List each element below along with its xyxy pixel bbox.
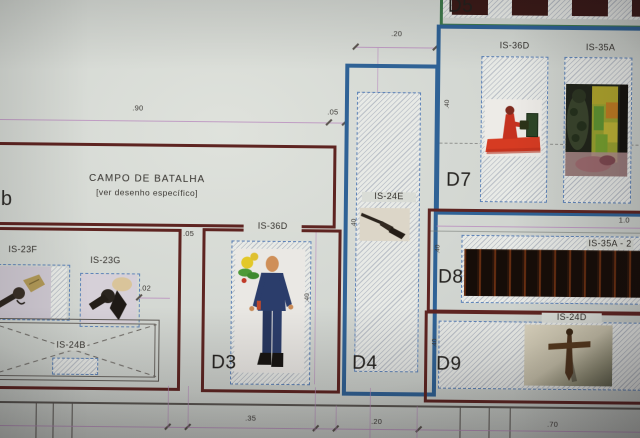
case-label-d3: D3	[211, 353, 236, 372]
hatch-fill	[51, 267, 68, 319]
dimension-line	[138, 297, 170, 298]
display-box-d7: IS-36D IS-35A D7 .40	[435, 25, 640, 217]
dimension-extension-line	[168, 386, 169, 428]
red-figure-photo	[484, 99, 542, 157]
wall-line	[459, 407, 461, 438]
mannequin-photo	[234, 248, 305, 373]
dimension-label: .70	[528, 421, 578, 429]
vertical-dim-label: .40	[351, 219, 358, 228]
exhibit-slot	[0, 264, 70, 321]
hatch-strip	[52, 358, 98, 375]
item-label-is23g: IS-23G	[90, 256, 120, 266]
crate-outline: IS-24B	[0, 318, 160, 382]
item-label-is36d-d7: IS-36D	[484, 41, 544, 52]
photographed-floorplan: .90 .05 .20 b CAMPO DE BATALHA [ver dese…	[0, 0, 640, 438]
dimension-label: .05	[319, 108, 347, 116]
rifle-graphic	[359, 208, 409, 242]
item-label-is35a2: IS-35A - 2	[586, 239, 633, 249]
wall-line	[52, 403, 54, 438]
guide-line	[431, 231, 640, 234]
soldiers-graphic	[565, 84, 628, 177]
mannequin-graphic	[234, 248, 305, 373]
case-label-d4: D4	[352, 354, 377, 373]
dimension-extension-line	[369, 388, 371, 438]
vertical-dim-label: .40	[444, 100, 451, 109]
dimension-line	[0, 119, 347, 124]
vertical-dim-label: .40	[304, 293, 311, 302]
display-box-d9: IS-24D	[424, 310, 640, 404]
display-box-guns: IS-23F IS-23G	[0, 227, 182, 391]
item-label-is23f: IS-23F	[8, 245, 37, 255]
case-label-d9: D9	[436, 355, 461, 374]
display-box-d8: 1.0 IS-35A - 2 D8 .40	[427, 208, 640, 314]
wall-line	[35, 402, 37, 438]
red-figure-graphic	[484, 99, 542, 157]
item-label-is35a-d7: IS-35A	[570, 43, 630, 54]
artifact-block	[632, 0, 640, 17]
case-label-d5: D5	[448, 0, 473, 16]
case-label-d7: D7	[446, 171, 471, 190]
soldiers-photo	[565, 84, 628, 177]
item-label-is36d: IS-36D	[244, 222, 302, 232]
dimension-extension-line	[416, 406, 417, 438]
dimension-line	[437, 226, 640, 229]
artifact-block	[572, 0, 608, 16]
dimension-label: .35	[226, 414, 276, 422]
artifact-strip-photo	[464, 249, 640, 298]
wall-line	[71, 403, 73, 438]
cross-dagger-graphic	[524, 325, 613, 387]
artifact-block	[512, 0, 548, 16]
cross-dagger-photo	[524, 325, 613, 387]
dimension-label: .05	[176, 230, 202, 238]
drawing-sheet: .90 .05 .20 b CAMPO DE BATALHA [ver dese…	[0, 0, 640, 438]
dimension-label: .90	[121, 104, 155, 112]
vertical-dim-label: .40	[431, 339, 438, 348]
campo-de-batalha-box: CAMPO DE BATALHA [ver desenho específico…	[0, 142, 336, 229]
campo-subtitle: [ver desenho específico]	[96, 187, 198, 198]
dimension-label: 1.0	[619, 216, 630, 224]
rifle-photo	[359, 208, 409, 242]
item-label-is24e: IS-24E	[362, 192, 416, 202]
display-box-d3: IS-36D D3 .40	[201, 228, 342, 393]
dimension-label: .20	[372, 30, 422, 38]
wall-line	[488, 407, 490, 438]
dimension-extension-line	[315, 387, 316, 431]
vertical-dim-label: .40	[434, 245, 441, 254]
revolver-graphic	[0, 266, 51, 319]
dimension-label: .02	[140, 284, 151, 292]
campo-title: CAMPO DE BATALHA	[89, 172, 205, 184]
wall-line	[509, 407, 511, 438]
dimension-extension-line	[188, 386, 189, 428]
case-label-d8: D8	[438, 268, 463, 287]
item-label-is24d: IS-24D	[542, 313, 602, 324]
dimension-extension-line	[314, 232, 317, 384]
revolver-photo-2	[81, 274, 138, 325]
revolver-graphic-2	[81, 274, 138, 325]
revolver-photo	[0, 266, 51, 319]
dimension-line	[356, 47, 438, 49]
item-label-is24b: IS-24B	[54, 341, 87, 351]
dimension-label: .20	[352, 418, 402, 426]
